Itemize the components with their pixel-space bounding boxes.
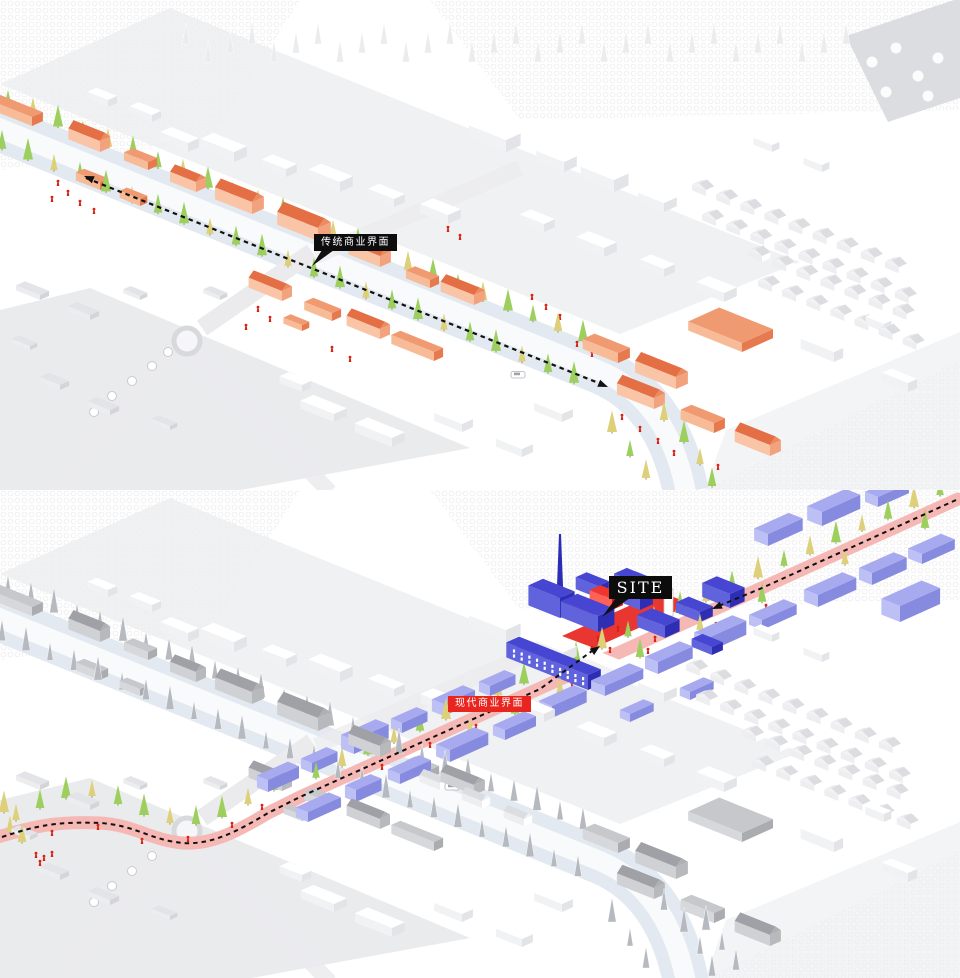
context-building bbox=[16, 281, 49, 300]
residential-house bbox=[889, 767, 911, 784]
modern-interface-callout: 现代商业界面 bbox=[448, 696, 531, 712]
residential-house bbox=[814, 755, 836, 771]
conifer-tree-icon bbox=[424, 31, 431, 53]
street-tree-icon bbox=[642, 459, 651, 478]
residential-house bbox=[783, 698, 805, 715]
residential-house bbox=[750, 229, 772, 246]
orange-commercial-building bbox=[688, 308, 773, 353]
residential-house bbox=[734, 679, 756, 696]
residential-house bbox=[793, 728, 815, 745]
residential-house bbox=[824, 785, 846, 801]
street-tree-icon bbox=[529, 305, 536, 321]
residential-house bbox=[782, 285, 804, 301]
context-building bbox=[203, 286, 227, 300]
street-tree-icon bbox=[607, 410, 617, 432]
street-tree-icon bbox=[192, 805, 201, 824]
residential-house bbox=[740, 199, 762, 216]
context-building bbox=[534, 888, 573, 912]
pedestrian-figure bbox=[269, 316, 272, 322]
residential-house bbox=[841, 747, 863, 764]
residential-house bbox=[758, 689, 780, 705]
pedestrian-figure bbox=[57, 180, 60, 186]
pedestrian-figure bbox=[257, 306, 260, 312]
conifer-tree-icon bbox=[627, 927, 633, 946]
orange-commercial-building bbox=[304, 298, 341, 321]
residential-house bbox=[720, 699, 742, 716]
pedestrian-figure bbox=[349, 356, 352, 362]
residential-house bbox=[807, 708, 829, 725]
traditional-interface-callout: 传统商业界面 bbox=[314, 234, 397, 251]
urban-analysis-figure: 传统商业界面 SITE 现代商业界面 bbox=[0, 0, 960, 978]
street-tree-icon bbox=[936, 490, 943, 495]
context-building bbox=[803, 644, 829, 662]
residential-house bbox=[702, 210, 724, 227]
residential-house bbox=[686, 660, 708, 677]
residential-house bbox=[895, 287, 917, 304]
pedestrian-figure bbox=[621, 414, 624, 420]
residential-house bbox=[830, 305, 852, 321]
conifer-tree-icon bbox=[642, 946, 649, 968]
pedestrian-figure bbox=[245, 324, 248, 330]
purple-commercial-building bbox=[645, 641, 693, 674]
site-label: SITE bbox=[609, 576, 672, 599]
orange-commercial-building bbox=[391, 331, 443, 361]
round-tree-icon bbox=[923, 91, 934, 102]
orange-commercial-building bbox=[283, 314, 309, 331]
pedestrian-figure bbox=[545, 304, 548, 310]
street-tree-icon bbox=[503, 289, 513, 311]
residential-house bbox=[887, 783, 909, 800]
halftone-texture bbox=[430, 490, 960, 610]
residential-house bbox=[764, 209, 786, 225]
residential-house bbox=[774, 239, 796, 255]
residential-house bbox=[903, 333, 925, 350]
context-building bbox=[801, 825, 844, 853]
residential-house bbox=[726, 219, 748, 236]
conifer-tree-icon bbox=[292, 31, 299, 53]
round-tree-icon bbox=[933, 53, 944, 64]
conifer-tree-icon bbox=[608, 897, 616, 922]
residential-house bbox=[768, 719, 790, 735]
context-building bbox=[801, 335, 844, 363]
modern-street-panel bbox=[0, 490, 960, 978]
conifer-tree-icon bbox=[557, 800, 564, 820]
car-icon bbox=[511, 372, 525, 379]
residential-house bbox=[692, 180, 714, 197]
round-tree-icon bbox=[164, 348, 173, 357]
residential-house bbox=[897, 813, 919, 830]
round-tree-icon bbox=[108, 882, 117, 891]
conifer-tree-icon bbox=[488, 772, 495, 792]
context-building bbox=[434, 408, 473, 432]
pedestrian-figure bbox=[93, 208, 96, 214]
conifer-tree-icon bbox=[336, 40, 343, 62]
conifer-tree-icon bbox=[402, 40, 409, 62]
street-tree-icon bbox=[626, 440, 633, 456]
context-building bbox=[434, 898, 473, 922]
residential-house bbox=[871, 277, 893, 294]
residential-house bbox=[879, 737, 901, 754]
pedestrian-figure bbox=[331, 346, 334, 352]
round-tree-icon bbox=[913, 71, 924, 82]
context-building bbox=[496, 924, 533, 947]
residential-house bbox=[796, 265, 818, 282]
roundabout bbox=[174, 328, 200, 354]
round-tree-icon bbox=[128, 377, 137, 386]
gray-old-building bbox=[347, 798, 390, 829]
conifer-tree-icon bbox=[380, 22, 387, 44]
orange-shop-house bbox=[347, 308, 390, 339]
pedestrian-figure bbox=[647, 648, 650, 654]
round-tree-icon bbox=[148, 362, 157, 371]
context-building bbox=[496, 434, 533, 457]
residential-house bbox=[845, 284, 867, 301]
residential-house bbox=[863, 774, 885, 791]
round-tree-icon bbox=[108, 392, 117, 401]
residential-house bbox=[790, 745, 812, 762]
residential-house bbox=[789, 218, 811, 235]
residential-house bbox=[823, 258, 845, 275]
residential-house bbox=[847, 267, 869, 284]
residential-house bbox=[837, 237, 859, 254]
gray-old-building bbox=[391, 821, 443, 851]
pedestrian-figure bbox=[67, 190, 70, 196]
conifer-tree-icon bbox=[358, 31, 365, 53]
residential-house bbox=[839, 764, 861, 781]
residential-house bbox=[855, 727, 877, 744]
context-building bbox=[203, 776, 227, 790]
context-building bbox=[803, 154, 829, 172]
residential-house bbox=[813, 228, 835, 245]
round-tree-icon bbox=[891, 43, 902, 54]
residential-house bbox=[861, 247, 883, 264]
pedestrian-figure bbox=[231, 822, 234, 828]
pedestrian-figure bbox=[79, 200, 82, 206]
context-building bbox=[753, 134, 779, 152]
pedestrian-figure bbox=[261, 804, 264, 810]
residential-house bbox=[776, 765, 798, 781]
residential-house bbox=[820, 275, 842, 291]
residential-house bbox=[817, 738, 839, 755]
residential-house bbox=[893, 303, 915, 320]
residential-house bbox=[885, 257, 907, 274]
residential-house bbox=[869, 294, 891, 311]
context-building bbox=[123, 286, 147, 300]
context-building bbox=[16, 771, 49, 790]
residential-house bbox=[865, 757, 887, 774]
context-building bbox=[123, 776, 147, 790]
traditional-street-panel bbox=[0, 0, 960, 490]
gray-old-building bbox=[688, 798, 773, 843]
context-building bbox=[753, 624, 779, 642]
pedestrian-figure bbox=[51, 196, 54, 202]
residential-house bbox=[800, 775, 822, 792]
residential-house bbox=[806, 295, 828, 312]
round-tree-icon bbox=[148, 852, 157, 861]
conifer-tree-icon bbox=[314, 22, 321, 44]
residential-house bbox=[758, 276, 780, 293]
residential-house bbox=[744, 709, 766, 726]
context-building bbox=[534, 398, 573, 422]
round-tree-icon bbox=[867, 57, 878, 68]
street-tree-icon bbox=[404, 251, 413, 270]
residential-house bbox=[831, 717, 853, 734]
residential-house bbox=[716, 189, 738, 206]
residential-house bbox=[799, 248, 821, 265]
round-tree-icon bbox=[881, 87, 892, 98]
round-tree-icon bbox=[128, 867, 137, 876]
